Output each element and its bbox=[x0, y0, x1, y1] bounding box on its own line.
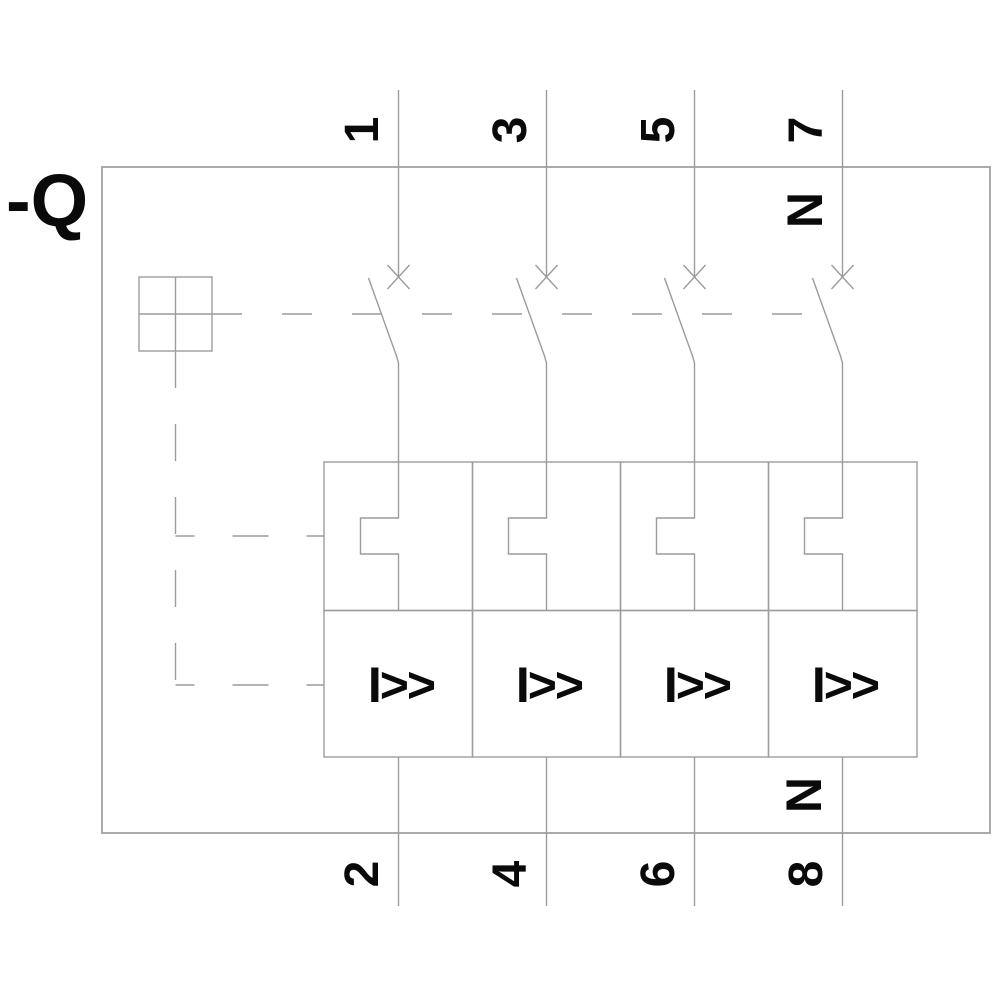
terminal-label-2: 2 bbox=[322, 834, 402, 914]
terminal-label-7: 7 bbox=[766, 90, 846, 170]
linkage-dashed-lines bbox=[176, 314, 824, 685]
terminal-label-6: 6 bbox=[618, 834, 698, 914]
actuator-box bbox=[139, 277, 212, 351]
neutral-marker-bottom: N bbox=[764, 755, 844, 835]
magnetic-trip-label-pole-1: I>> bbox=[326, 650, 476, 720]
terminal-label-1: 1 bbox=[322, 90, 402, 170]
device-designation-label: -Q bbox=[6, 163, 116, 237]
pole-2-switch-blade bbox=[517, 278, 547, 462]
neutral-marker-top: N bbox=[765, 170, 845, 250]
pole-3-switch-blade bbox=[665, 278, 695, 462]
pole-3-thermal-trip-symbol bbox=[657, 462, 695, 610]
terminal-label-4: 4 bbox=[470, 834, 550, 914]
pole-1-conductor bbox=[361, 90, 410, 906]
breaker-schematic: -Q 1 3 5 7 N N I>> I>> I>> I>> 2 4 6 8 bbox=[0, 0, 1000, 1000]
pole-3-conductor bbox=[657, 90, 706, 906]
magnetic-trip-label-pole-4: I>> bbox=[770, 650, 920, 720]
pole-1-switch-blade bbox=[369, 278, 399, 462]
magnetic-trip-label-pole-2: I>> bbox=[474, 650, 624, 720]
pole-1-thermal-trip-symbol bbox=[361, 462, 399, 610]
pole-4-thermal-trip-symbol bbox=[805, 462, 843, 610]
terminal-label-8: 8 bbox=[766, 834, 846, 914]
pole-4-switch-blade bbox=[813, 278, 843, 462]
pole-2-thermal-trip-symbol bbox=[509, 462, 547, 610]
thermal-trip-boxes bbox=[324, 462, 917, 611]
terminal-label-5: 5 bbox=[618, 90, 698, 170]
pole-2-conductor bbox=[509, 90, 558, 906]
magnetic-trip-label-pole-3: I>> bbox=[622, 650, 772, 720]
terminal-label-3: 3 bbox=[470, 90, 550, 170]
